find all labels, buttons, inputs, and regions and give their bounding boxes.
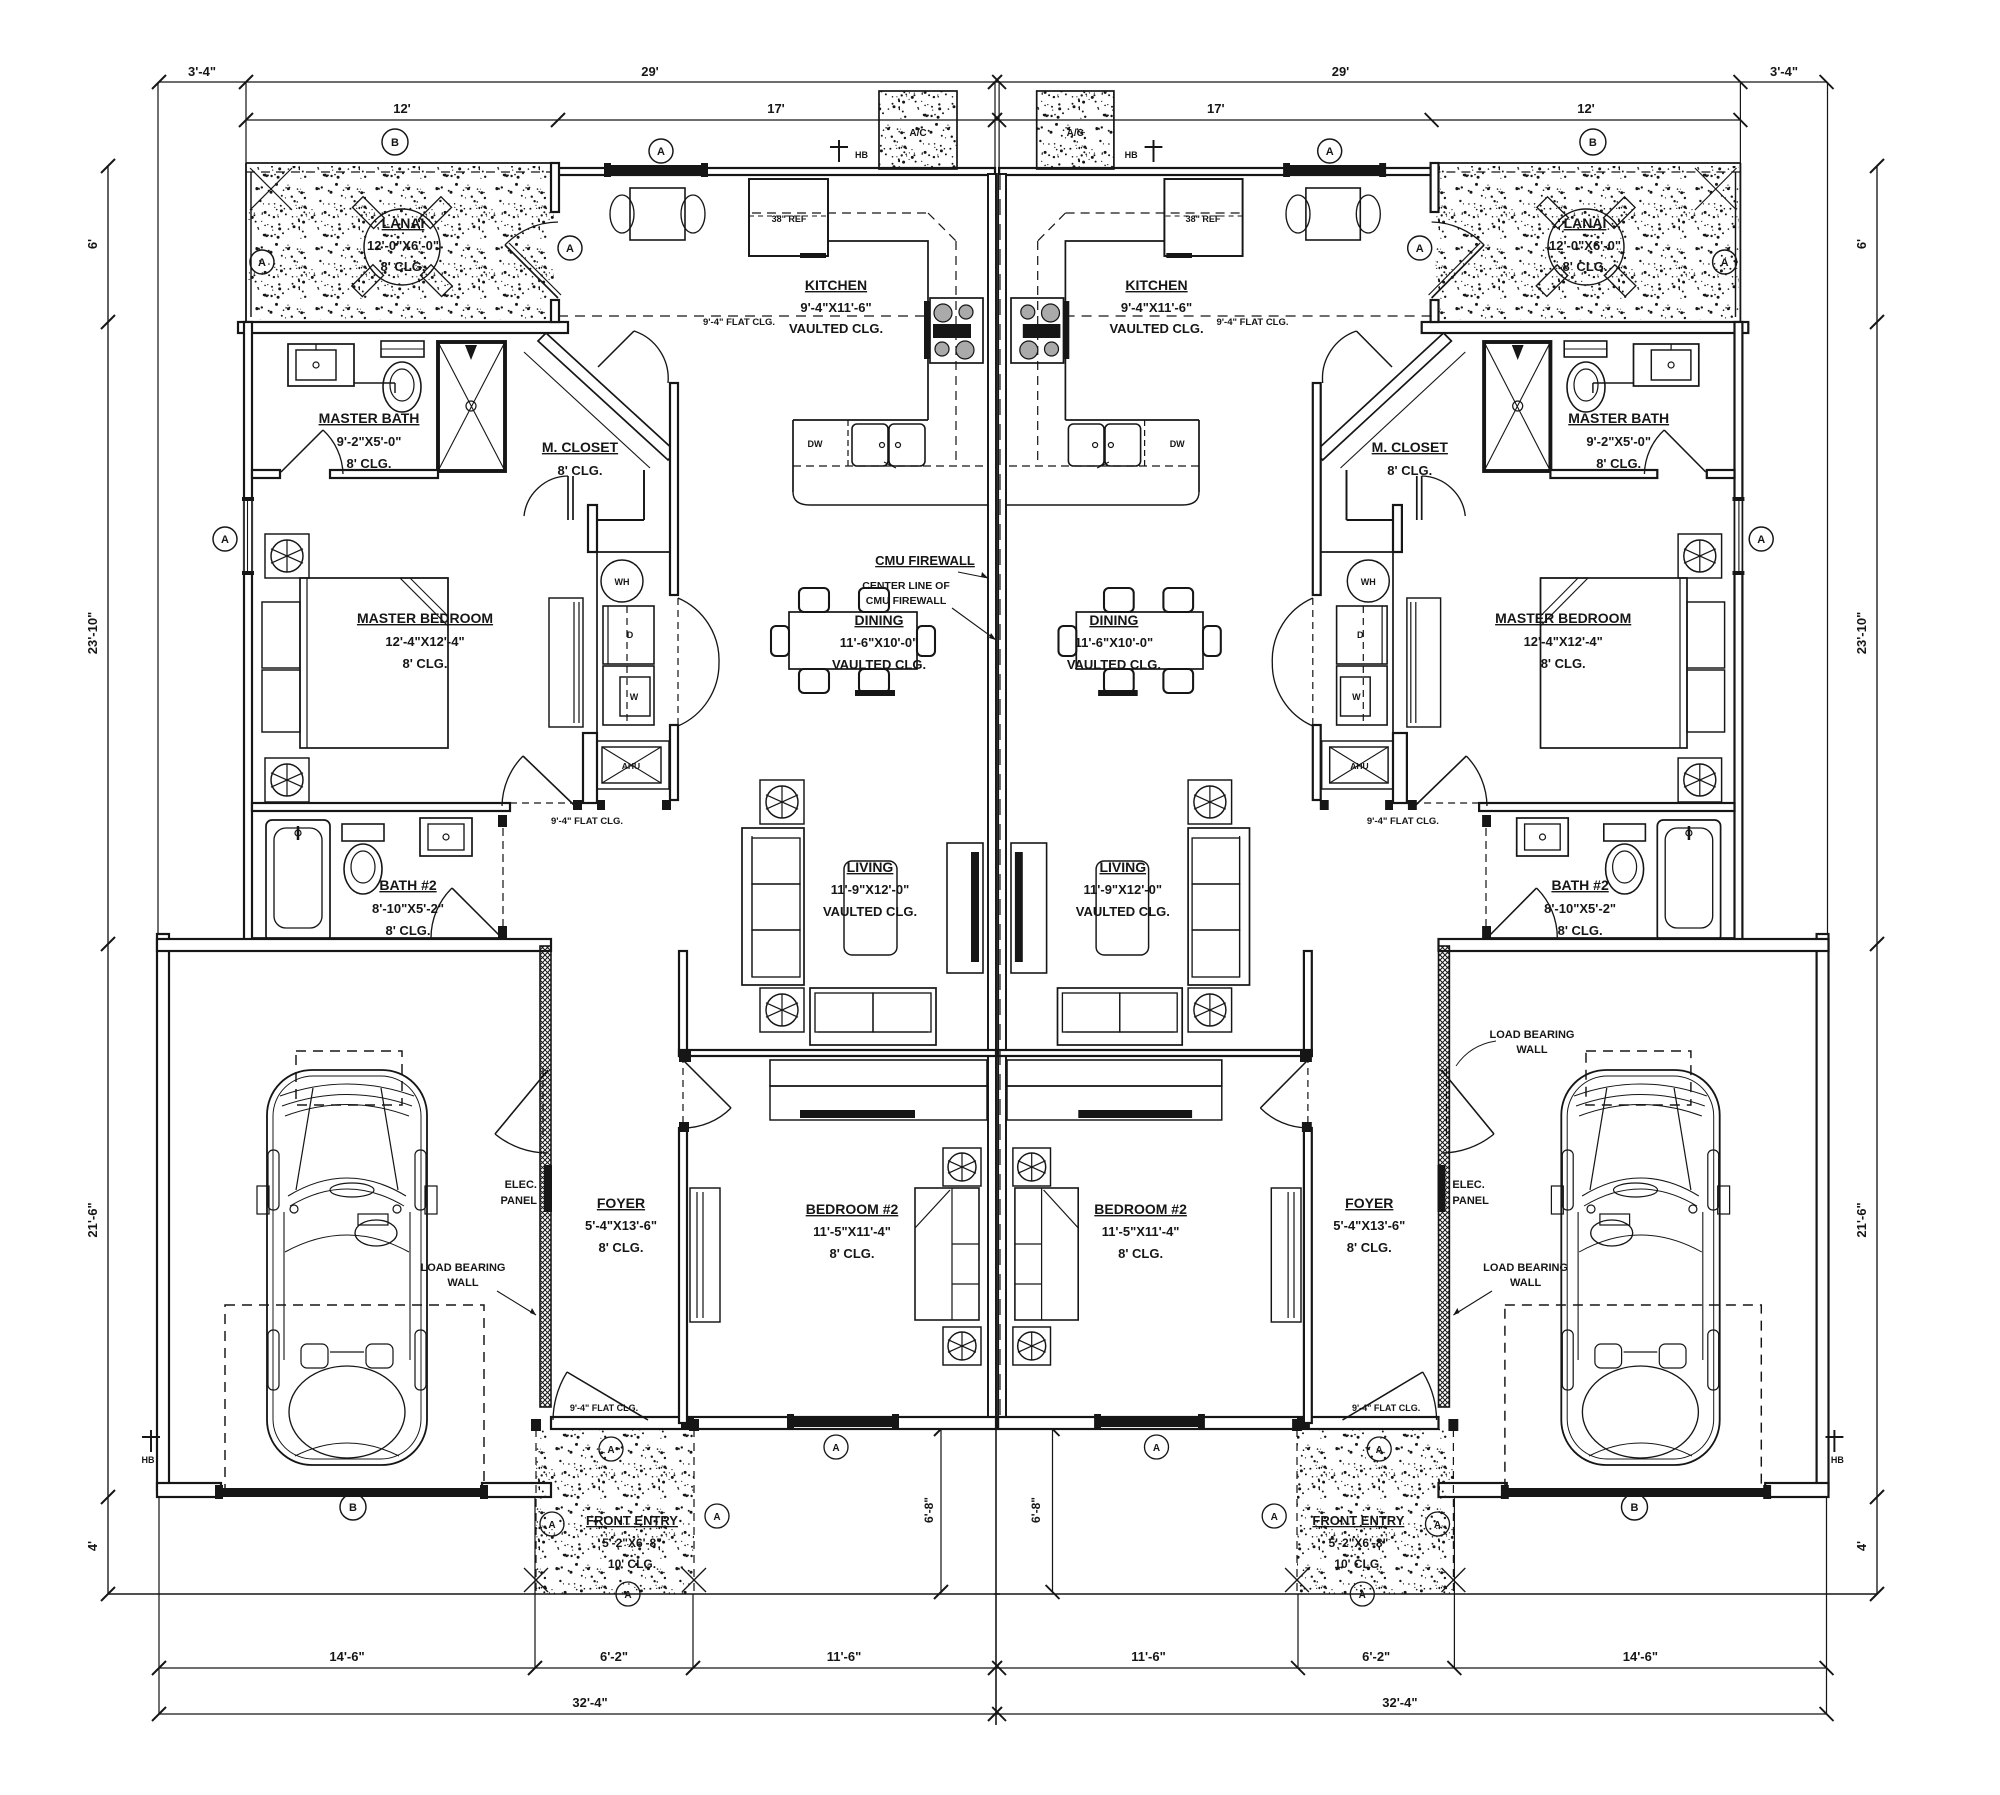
svg-text:A: A: [221, 534, 229, 546]
svg-text:6': 6': [85, 239, 100, 249]
svg-text:3'-4": 3'-4": [188, 64, 216, 79]
svg-text:B: B: [349, 1502, 357, 1514]
svg-text:AHU: AHU: [622, 761, 640, 771]
svg-text:B: B: [1589, 137, 1597, 149]
svg-text:HB: HB: [1831, 1455, 1844, 1465]
svg-text:8' CLG.: 8' CLG.: [1541, 656, 1586, 671]
svg-text:A: A: [832, 1443, 839, 1454]
svg-text:8' CLG.: 8' CLG.: [1563, 259, 1608, 274]
svg-text:5'-4"X13'-6": 5'-4"X13'-6": [1333, 1218, 1405, 1233]
svg-text:BATH #2: BATH #2: [1551, 877, 1609, 893]
svg-text:29': 29': [641, 64, 659, 79]
svg-text:DINING: DINING: [855, 612, 904, 628]
svg-text:12'-4"X12'-4": 12'-4"X12'-4": [385, 634, 464, 649]
svg-text:5'-4"X13'-6": 5'-4"X13'-6": [585, 1218, 657, 1233]
svg-text:A: A: [1153, 1443, 1160, 1454]
svg-text:MASTER BEDROOM: MASTER BEDROOM: [357, 610, 493, 626]
svg-text:38" REF: 38" REF: [1186, 214, 1221, 224]
svg-text:WH: WH: [1361, 577, 1376, 587]
svg-text:WALL: WALL: [1510, 1277, 1541, 1289]
svg-text:11'-9"X12'-0": 11'-9"X12'-0": [831, 882, 910, 897]
svg-text:PANEL: PANEL: [1452, 1195, 1489, 1207]
svg-text:11'-6": 11'-6": [1131, 1649, 1166, 1664]
svg-text:LANAI: LANAI: [382, 215, 425, 231]
svg-text:D: D: [627, 630, 634, 640]
svg-text:CMU FIREWALL: CMU FIREWALL: [875, 553, 975, 568]
svg-text:BATH #2: BATH #2: [379, 877, 437, 893]
svg-text:LANAI: LANAI: [1564, 215, 1607, 231]
svg-text:9'-4" FLAT CLG.: 9'-4" FLAT CLG.: [1216, 317, 1288, 328]
svg-text:A: A: [1271, 1512, 1278, 1523]
svg-text:23'-10": 23'-10": [85, 612, 100, 655]
svg-text:11'-9"X12'-0": 11'-9"X12'-0": [1084, 882, 1163, 897]
svg-text:21'-6": 21'-6": [85, 1202, 100, 1237]
svg-text:17': 17': [1207, 101, 1225, 116]
svg-text:6'-8": 6'-8": [1029, 1497, 1043, 1523]
svg-text:VAULTED CLG.: VAULTED CLG.: [1109, 321, 1203, 336]
svg-text:LIVING: LIVING: [847, 859, 894, 875]
svg-text:9'-2"X5'-0": 9'-2"X5'-0": [337, 434, 402, 449]
svg-text:11'-6": 11'-6": [827, 1649, 862, 1664]
svg-text:BEDROOM #2: BEDROOM #2: [1094, 1201, 1187, 1217]
svg-text:11'-6"X10'-0": 11'-6"X10'-0": [840, 635, 919, 650]
svg-text:6'-8": 6'-8": [922, 1497, 936, 1523]
svg-text:A: A: [1416, 243, 1424, 255]
svg-text:A: A: [1326, 146, 1334, 158]
svg-text:6'-2": 6'-2": [1362, 1649, 1390, 1664]
svg-text:A: A: [657, 146, 665, 158]
svg-text:VAULTED CLG.: VAULTED CLG.: [1067, 657, 1161, 672]
svg-text:HB: HB: [855, 150, 868, 160]
svg-text:VAULTED CLG.: VAULTED CLG.: [1076, 904, 1170, 919]
svg-text:14'-6": 14'-6": [1623, 1649, 1658, 1664]
svg-text:WALL: WALL: [1516, 1044, 1547, 1056]
svg-text:ELEC.: ELEC.: [1452, 1179, 1484, 1191]
svg-text:12'-4"X12'-4": 12'-4"X12'-4": [1524, 634, 1603, 649]
svg-text:6': 6': [1854, 239, 1869, 249]
svg-text:VAULTED CLG.: VAULTED CLG.: [789, 321, 883, 336]
svg-text:CENTER LINE OF: CENTER LINE OF: [862, 580, 950, 592]
svg-text:14'-6": 14'-6": [329, 1649, 364, 1664]
svg-text:12'-0"X6'-0": 12'-0"X6'-0": [367, 238, 439, 253]
svg-text:8' CLG.: 8' CLG.: [386, 923, 431, 938]
svg-text:KITCHEN: KITCHEN: [805, 277, 867, 293]
svg-text:8' CLG.: 8' CLG.: [381, 259, 426, 274]
svg-text:A: A: [566, 243, 574, 255]
svg-text:A: A: [624, 1590, 631, 1601]
svg-text:MASTER BEDROOM: MASTER BEDROOM: [1495, 610, 1631, 626]
svg-text:A: A: [548, 1520, 555, 1531]
svg-text:32'-4": 32'-4": [1382, 1695, 1417, 1710]
svg-text:9'-4" FLAT CLG.: 9'-4" FLAT CLG.: [1367, 816, 1439, 827]
svg-text:17': 17': [767, 101, 785, 116]
svg-text:8' CLG.: 8' CLG.: [1558, 923, 1603, 938]
svg-text:A: A: [258, 257, 266, 269]
svg-text:A: A: [1376, 1445, 1383, 1456]
svg-text:29': 29': [1332, 64, 1350, 79]
svg-text:8' CLG.: 8' CLG.: [1596, 456, 1641, 471]
svg-text:32'-4": 32'-4": [572, 1695, 607, 1710]
svg-text:21'-6": 21'-6": [1854, 1202, 1869, 1237]
svg-text:12': 12': [393, 101, 411, 116]
svg-text:LIVING: LIVING: [1099, 859, 1146, 875]
svg-text:FOYER: FOYER: [597, 1195, 645, 1211]
svg-text:DW: DW: [1170, 439, 1185, 449]
svg-text:A: A: [607, 1445, 614, 1456]
svg-text:8' CLG.: 8' CLG.: [347, 456, 392, 471]
svg-text:LOAD BEARING: LOAD BEARING: [1490, 1029, 1575, 1041]
svg-text:A: A: [713, 1512, 720, 1523]
svg-text:B: B: [1631, 1502, 1639, 1514]
svg-text:8' CLG.: 8' CLG.: [1387, 463, 1432, 478]
svg-text:A: A: [1434, 1520, 1441, 1531]
svg-text:PANEL: PANEL: [501, 1195, 538, 1207]
svg-text:12': 12': [1577, 101, 1595, 116]
svg-text:A: A: [1757, 534, 1765, 546]
svg-text:8' CLG.: 8' CLG.: [1347, 1240, 1392, 1255]
svg-text:9'-2"X5'-0": 9'-2"X5'-0": [1586, 434, 1651, 449]
svg-text:6'-2": 6'-2": [600, 1649, 628, 1664]
svg-text:KITCHEN: KITCHEN: [1125, 277, 1187, 293]
svg-text:B: B: [391, 137, 399, 149]
svg-text:LOAD BEARING: LOAD BEARING: [421, 1262, 506, 1274]
svg-text:VAULTED CLG.: VAULTED CLG.: [823, 904, 917, 919]
svg-text:11'-5"X11'-4": 11'-5"X11'-4": [813, 1224, 891, 1239]
svg-text:8' CLG.: 8' CLG.: [403, 656, 448, 671]
svg-text:23'-10": 23'-10": [1854, 612, 1869, 655]
svg-text:A: A: [1721, 257, 1729, 269]
svg-text:ELEC.: ELEC.: [505, 1179, 537, 1191]
svg-text:8' CLG.: 8' CLG.: [1118, 1246, 1163, 1261]
svg-text:W: W: [630, 692, 639, 702]
svg-text:VAULTED CLG.: VAULTED CLG.: [832, 657, 926, 672]
svg-text:9'-4"X11'-6": 9'-4"X11'-6": [800, 300, 871, 315]
svg-text:HB: HB: [142, 1455, 155, 1465]
svg-text:FOYER: FOYER: [1345, 1195, 1393, 1211]
svg-text:3'-4": 3'-4": [1770, 64, 1798, 79]
svg-text:8' CLG.: 8' CLG.: [599, 1240, 644, 1255]
svg-text:HB: HB: [1125, 150, 1138, 160]
svg-text:5'-2"X6'-8": 5'-2"X6'-8": [602, 1536, 662, 1550]
svg-text:A/C: A/C: [909, 128, 926, 139]
svg-text:9'-4" FLAT CLG.: 9'-4" FLAT CLG.: [551, 816, 623, 827]
svg-text:4': 4': [1854, 1541, 1869, 1551]
svg-text:8'-10"X5'-2": 8'-10"X5'-2": [1544, 901, 1616, 916]
svg-text:5'-2"X6'-8": 5'-2"X6'-8": [1329, 1536, 1389, 1550]
svg-text:M. CLOSET: M. CLOSET: [542, 439, 619, 455]
svg-text:10' CLG.: 10' CLG.: [1334, 1557, 1382, 1571]
svg-text:11'-6"X10'-0": 11'-6"X10'-0": [1075, 635, 1154, 650]
svg-text:A: A: [1359, 1590, 1366, 1601]
svg-text:MASTER BATH: MASTER BATH: [319, 410, 420, 426]
svg-text:MASTER BATH: MASTER BATH: [1568, 410, 1669, 426]
svg-text:WH: WH: [615, 577, 630, 587]
svg-text:8'-10"X5'-2": 8'-10"X5'-2": [372, 901, 444, 916]
svg-text:10' CLG.: 10' CLG.: [608, 1557, 656, 1571]
svg-text:M. CLOSET: M. CLOSET: [1372, 439, 1449, 455]
svg-text:A/C: A/C: [1067, 128, 1084, 139]
svg-text:9'-4" FLAT CLG.: 9'-4" FLAT CLG.: [703, 317, 775, 328]
svg-text:W: W: [1352, 692, 1361, 702]
svg-text:CMU FIREWALL: CMU FIREWALL: [866, 595, 947, 607]
svg-text:38" REF: 38" REF: [772, 214, 807, 224]
svg-text:AHU: AHU: [1350, 761, 1368, 771]
svg-text:DINING: DINING: [1089, 612, 1138, 628]
svg-text:8' CLG.: 8' CLG.: [830, 1246, 875, 1261]
svg-text:9'-4"X11'-6": 9'-4"X11'-6": [1121, 300, 1192, 315]
svg-text:BEDROOM #2: BEDROOM #2: [806, 1201, 899, 1217]
svg-text:4': 4': [85, 1541, 100, 1551]
svg-text:12'-0"X6'-0": 12'-0"X6'-0": [1549, 238, 1621, 253]
svg-text:FRONT ENTRY: FRONT ENTRY: [1312, 1513, 1404, 1528]
svg-text:11'-5"X11'-4": 11'-5"X11'-4": [1102, 1224, 1180, 1239]
svg-text:FRONT ENTRY: FRONT ENTRY: [586, 1513, 678, 1528]
svg-text:DW: DW: [808, 439, 823, 449]
svg-text:LOAD BEARING: LOAD BEARING: [1483, 1262, 1568, 1274]
svg-text:8' CLG.: 8' CLG.: [558, 463, 603, 478]
svg-text:WALL: WALL: [447, 1277, 478, 1289]
